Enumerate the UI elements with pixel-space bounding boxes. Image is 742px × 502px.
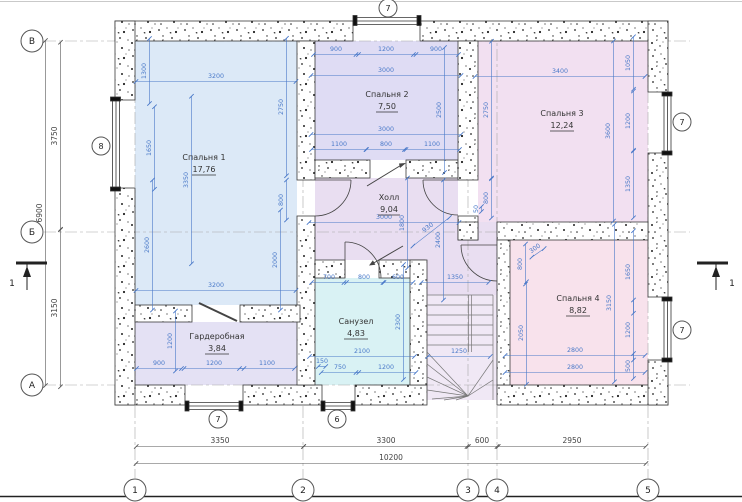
floor-plan-canvas: 1300320016503350275080026002000320012009… (0, 0, 742, 502)
dim-label: 2750 (278, 99, 285, 115)
dim-label: 10200 (379, 453, 403, 462)
axis-a: А (29, 381, 36, 391)
dim-label: 3150 (50, 298, 59, 317)
dim-label: 3000 (378, 67, 394, 74)
axis-1: 1 (132, 486, 138, 496)
dim-label: 900 (330, 46, 342, 53)
marker-left: 8 (98, 142, 103, 151)
dim-label: 3400 (552, 68, 568, 75)
marker-bottom-mid: 6 (334, 415, 339, 424)
dim-label: 3000 (378, 126, 394, 133)
dim-label: 3200 (208, 73, 224, 80)
dim-label: 2500 (436, 102, 443, 118)
label-wardrobe: Гардеробная (189, 332, 244, 341)
dim-label: 800 (517, 258, 524, 270)
window-left (111, 97, 121, 191)
marker-right-bottom: 7 (679, 326, 684, 335)
dim-label: 3200 (208, 282, 224, 289)
window-right-top (662, 92, 672, 155)
dimension: 10200 (134, 453, 648, 466)
dim-label: 1200 (378, 364, 394, 371)
window-bottom-mid (321, 401, 355, 411)
dim-label: 2300 (395, 314, 402, 330)
area-hall: 9,04 (380, 205, 398, 214)
dim-label: 3350 (183, 172, 190, 188)
dim-label: 2800 (567, 364, 583, 371)
dim-label: 800 (483, 192, 490, 204)
dim-label: 50 (473, 205, 480, 213)
dim-label: 500 (625, 360, 632, 372)
axis-bubble-labels-bottom: 1 2 3 4 5 (132, 486, 651, 496)
axis-2: 2 (300, 486, 306, 496)
area-bedroom2: 7,50 (378, 102, 396, 111)
dim-label: 800 (278, 194, 285, 206)
label-bedroom1: Спальня 1 (182, 153, 225, 162)
dimension: 3350 (134, 436, 306, 449)
marker-right-top: 7 (679, 118, 684, 127)
dim-label: 1650 (146, 140, 153, 156)
dim-label: 3300 (376, 436, 395, 445)
dim-label: 3750 (50, 126, 59, 145)
dim-label: 900 (153, 360, 165, 367)
dim-label: 750 (334, 364, 346, 371)
dimension: 6900 (35, 38, 48, 387)
dim-label: 600 (475, 436, 490, 445)
area-bedroom4: 8,82 (569, 306, 587, 315)
dim-label: 2800 (567, 347, 583, 354)
dim-label: 1100 (259, 360, 275, 367)
label-bedroom4: Спальня 4 (556, 294, 599, 303)
dim-label: 800 (358, 274, 370, 281)
dimension: 600 (465, 436, 499, 449)
axis-v: В (29, 37, 35, 47)
dim-label: 150 (316, 358, 328, 365)
dim-label: 1250 (451, 348, 467, 355)
dim-label: 2950 (562, 436, 581, 445)
dim-label: 700 (323, 274, 335, 281)
axis-5: 5 (645, 486, 651, 496)
dim-label: 1200 (625, 113, 632, 129)
label-bedroom2: Спальня 2 (365, 90, 408, 99)
dimension: 3750 (50, 40, 63, 232)
area-bedroom3: 12,24 (551, 121, 574, 130)
dim-label: 1200 (206, 360, 222, 367)
dimension: 2950 (496, 436, 648, 449)
dim-label: 900 (430, 46, 442, 53)
dim-label: 1200 (167, 333, 174, 349)
label-bathroom: Санузел (339, 317, 374, 326)
dimension: 3300 (301, 436, 470, 449)
area-bedroom1: 17,76 (193, 165, 216, 174)
dim-label: 1200 (378, 46, 394, 53)
dim-label: 1200 (625, 322, 632, 338)
label-bedroom3: Спальня 3 (540, 109, 583, 118)
dim-label: 1100 (424, 141, 440, 148)
dim-label: 2050 (518, 325, 525, 341)
window-right-bottom (662, 297, 672, 362)
dim-label: 3350 (210, 436, 229, 445)
dim-label: 1650 (625, 264, 632, 280)
section-mark-right: 1 (697, 263, 735, 290)
door-wardrobe-leaf (199, 303, 237, 321)
axis-b: Б (29, 228, 35, 238)
dim-label: 1300 (141, 63, 148, 79)
section-label-left: 1 (9, 279, 15, 289)
dim-label: 2750 (483, 102, 490, 118)
axis-4: 4 (494, 486, 500, 496)
dim-label: 1100 (331, 141, 347, 148)
area-wardrobe: 3,84 (208, 344, 226, 353)
label-hall: Холл (379, 193, 400, 202)
dim-label: 2600 (144, 237, 151, 253)
dim-label: 6900 (35, 203, 44, 222)
dim-label: 1350 (625, 176, 632, 192)
dim-label: 1350 (447, 274, 463, 281)
axis-bubbles-bottom (124, 479, 659, 501)
marker-top: 7 (385, 4, 390, 13)
dim-label: 2100 (354, 348, 370, 355)
dim-label: 3600 (605, 123, 612, 139)
dim-label: 1800 (399, 215, 406, 231)
area-bathroom: 4,83 (347, 329, 365, 338)
dim-label: 600 (392, 274, 404, 281)
section-label-right: 1 (729, 279, 735, 289)
axis-3: 3 (465, 486, 471, 496)
dim-label: 800 (380, 141, 392, 148)
dim-label: 1050 (625, 55, 632, 71)
dim-label: 2400 (435, 232, 442, 248)
dimension: 3150 (50, 227, 63, 389)
dim-label: 2000 (272, 252, 279, 268)
marker-bottom-left: 7 (215, 415, 220, 424)
section-mark-left: 1 (9, 263, 47, 290)
window-bottom-left (185, 401, 243, 411)
dim-label: 3150 (606, 295, 613, 311)
